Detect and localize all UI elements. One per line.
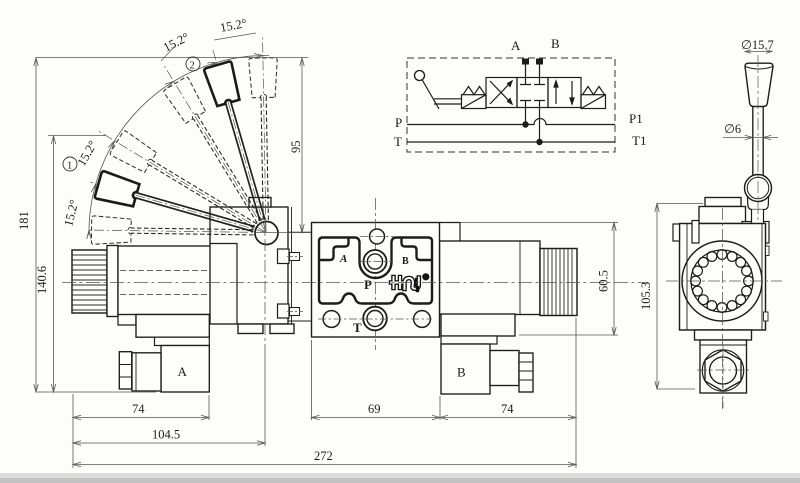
svg-text:T: T bbox=[394, 134, 402, 149]
svg-text:272: 272 bbox=[314, 449, 333, 463]
svg-text:A: A bbox=[178, 364, 188, 379]
svg-text:B: B bbox=[402, 256, 409, 267]
svg-text:105.3: 105.3 bbox=[639, 282, 653, 310]
svg-text:140.6: 140.6 bbox=[35, 266, 49, 294]
svg-text:74: 74 bbox=[501, 402, 514, 416]
svg-text:∅15.7: ∅15.7 bbox=[741, 38, 774, 52]
svg-text:104.5: 104.5 bbox=[152, 428, 180, 442]
svg-text:95: 95 bbox=[289, 141, 303, 154]
svg-text:B: B bbox=[457, 365, 466, 380]
svg-text:T1: T1 bbox=[632, 133, 646, 148]
svg-text:R: R bbox=[424, 274, 429, 281]
svg-text:69: 69 bbox=[368, 402, 381, 416]
svg-text:P1: P1 bbox=[629, 111, 643, 126]
svg-text:T: T bbox=[353, 320, 362, 335]
svg-text:181: 181 bbox=[17, 211, 31, 230]
svg-text:B: B bbox=[551, 36, 560, 51]
svg-text:P: P bbox=[395, 115, 402, 130]
svg-text:A: A bbox=[511, 38, 521, 53]
svg-text:2: 2 bbox=[190, 61, 195, 72]
svg-text:74: 74 bbox=[132, 402, 145, 416]
svg-text:P: P bbox=[364, 277, 372, 292]
svg-text:A: A bbox=[339, 253, 347, 265]
svg-text:∅6: ∅6 bbox=[724, 122, 741, 136]
svg-text:1: 1 bbox=[67, 161, 72, 172]
svg-text:60.5: 60.5 bbox=[597, 270, 611, 292]
